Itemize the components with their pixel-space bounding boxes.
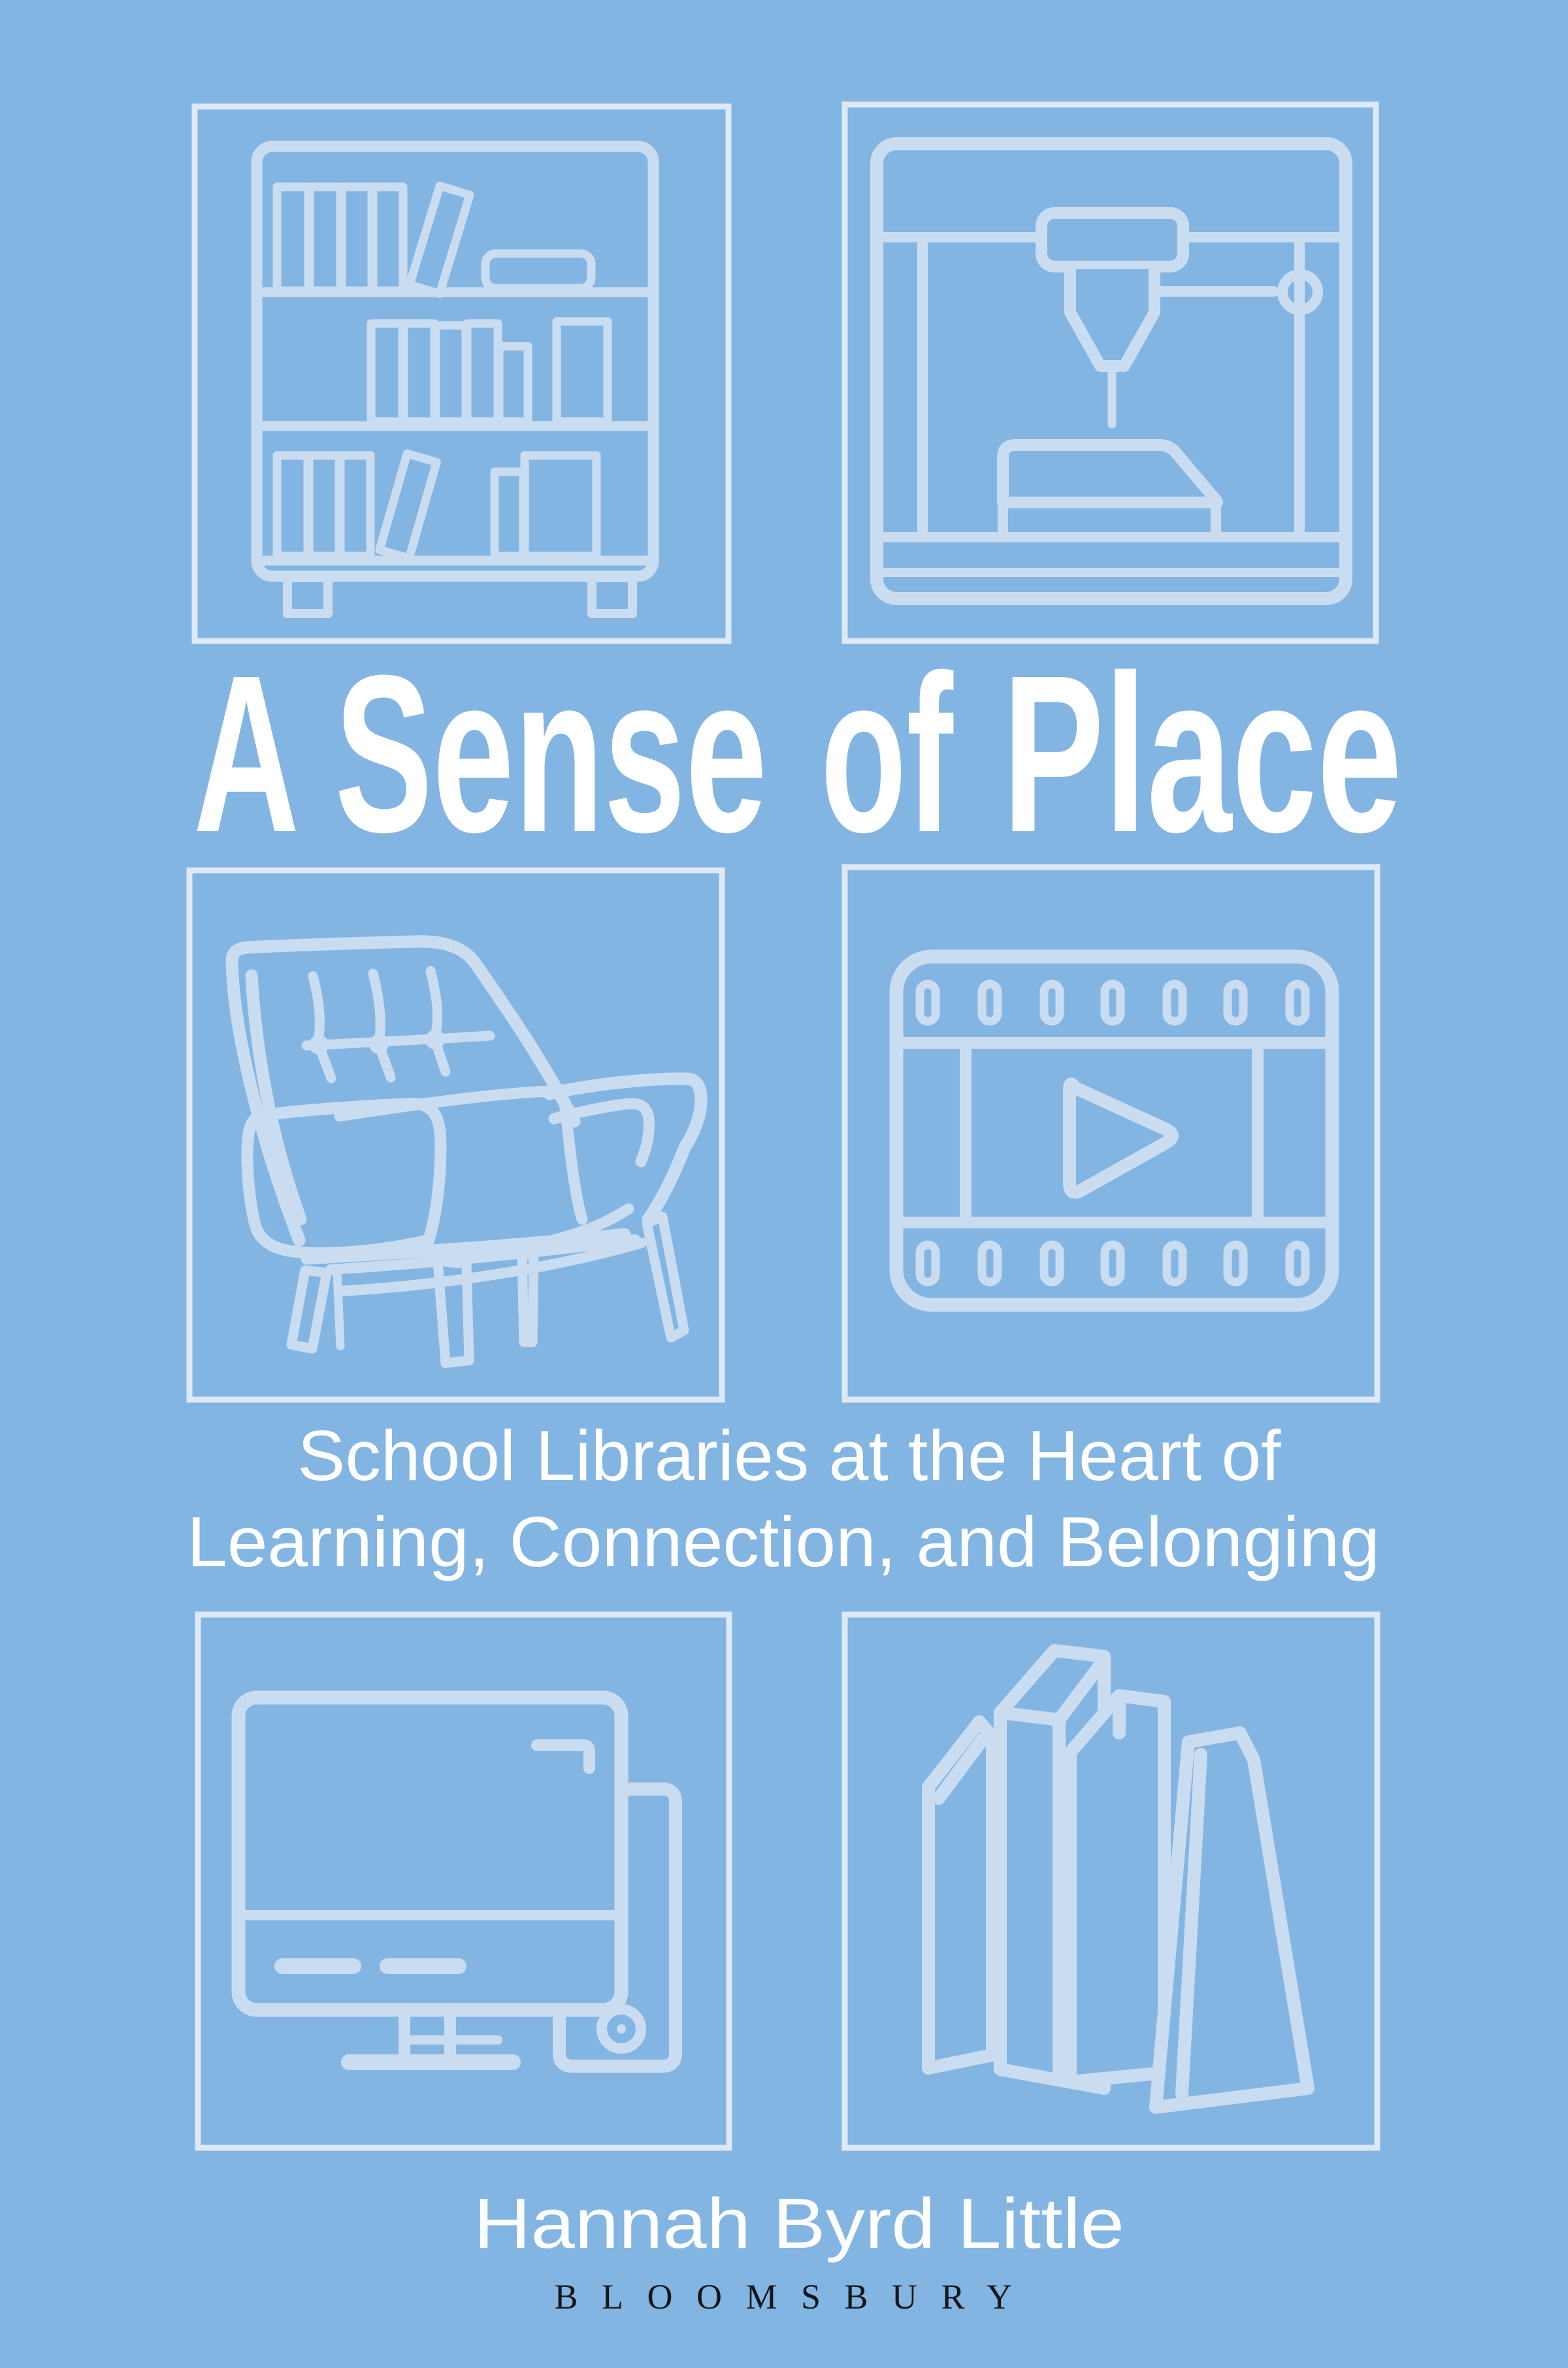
- svg-text:School Libraries at the Heart: School Libraries at the Heart of: [298, 1416, 1282, 1496]
- svg-text:A Sense: A Sense: [193, 628, 767, 879]
- svg-text:Place: Place: [1002, 628, 1402, 879]
- svg-text:BLOOMSBURY: BLOOMSBURY: [554, 2277, 1036, 2316]
- svg-text:Learning, Connection, and Belo: Learning, Connection, and Belonging: [187, 1502, 1380, 1582]
- svg-text:Hannah Byrd Little: Hannah Byrd Little: [474, 2184, 1124, 2263]
- svg-text:of: of: [821, 628, 955, 879]
